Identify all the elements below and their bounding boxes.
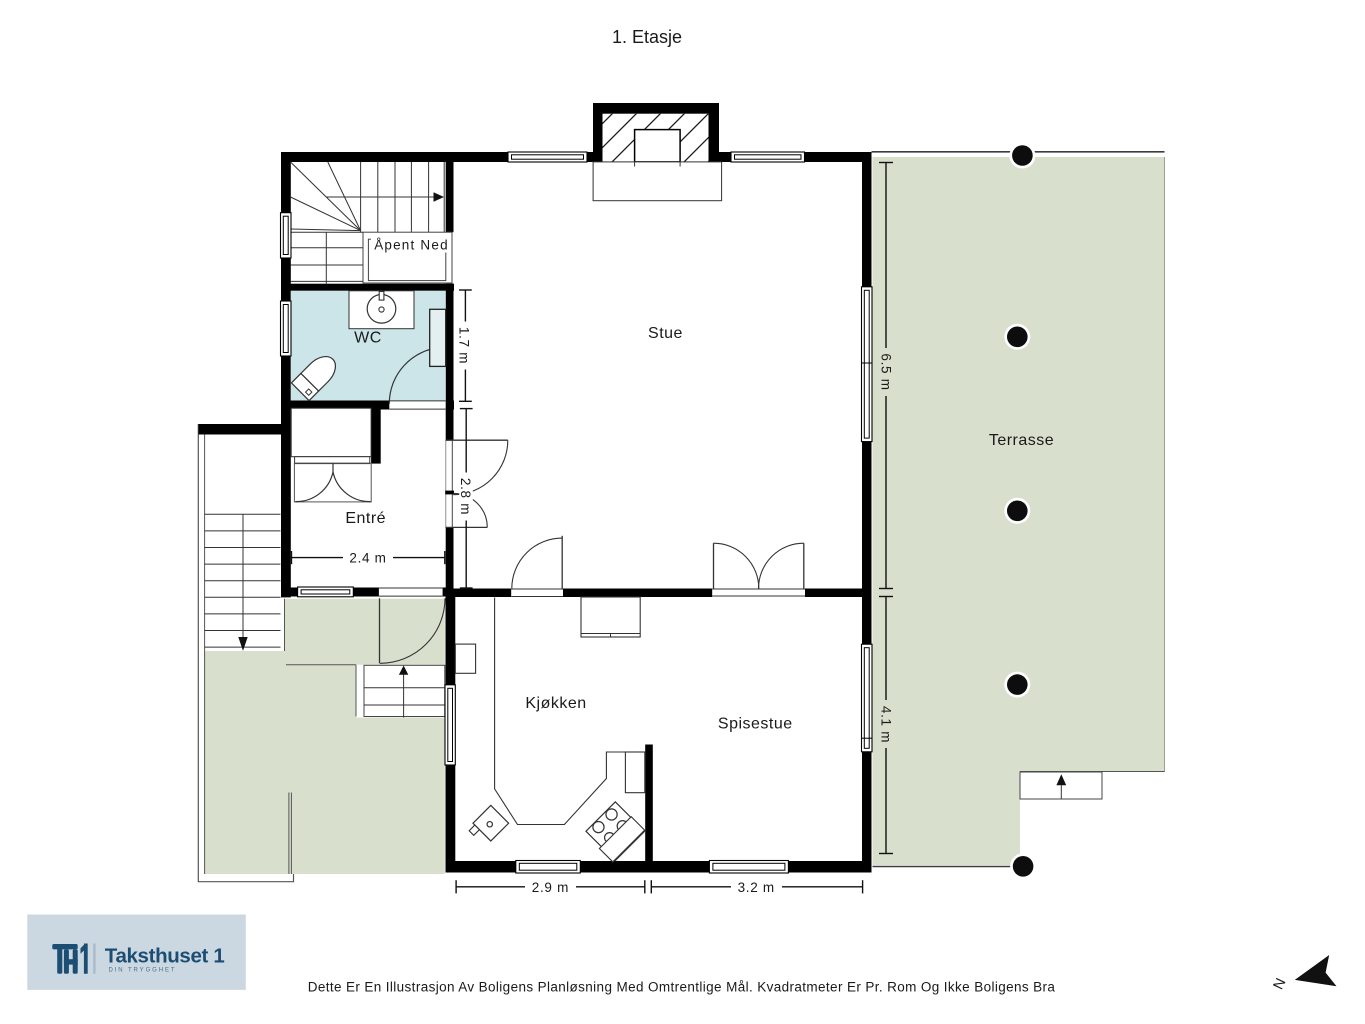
svg-text:Kjøkken: Kjøkken: [525, 695, 586, 712]
svg-text:Åpent Ned: Åpent Ned: [374, 238, 449, 253]
svg-text:Dette Er En Illustrasjon Av Bo: Dette Er En Illustrasjon Av Boligens Pla…: [308, 980, 1056, 995]
svg-text:Stue: Stue: [648, 325, 683, 342]
svg-text:1.7 m: 1.7 m: [457, 327, 472, 364]
svg-text:1. Etasje: 1. Etasje: [612, 27, 682, 47]
svg-text:Spisestue: Spisestue: [718, 716, 793, 733]
svg-text:2.9 m: 2.9 m: [532, 880, 569, 895]
svg-text:DIN TRYGGHET: DIN TRYGGHET: [109, 968, 177, 974]
svg-text:2.4 m: 2.4 m: [349, 550, 386, 565]
svg-text:3.2 m: 3.2 m: [738, 880, 775, 895]
svg-text:Entré: Entré: [345, 510, 386, 527]
svg-text:Taksthuset 1: Taksthuset 1: [105, 945, 225, 968]
svg-text:Terrasse: Terrasse: [989, 432, 1054, 449]
svg-text:6.5 m: 6.5 m: [878, 353, 893, 390]
svg-text:4.1 m: 4.1 m: [878, 706, 893, 743]
svg-text:WC: WC: [354, 330, 382, 347]
svg-text:2.8 m: 2.8 m: [458, 478, 473, 515]
